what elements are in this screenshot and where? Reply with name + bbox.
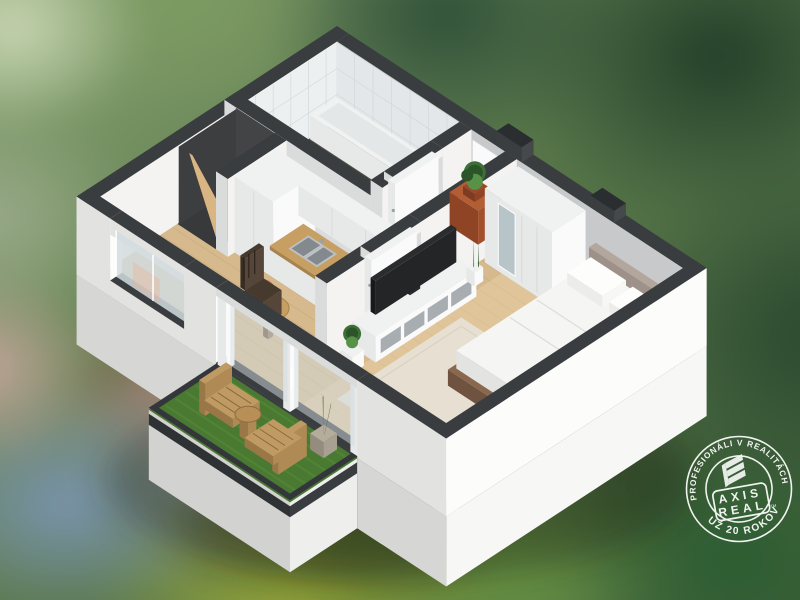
screenshot-stage: PROFESIONÁLI V REALITÁCH UŽ 20 ROKOV AXI… — [0, 0, 800, 600]
floorplan-render: PROFESIONÁLI V REALITÁCH UŽ 20 ROKOV AXI… — [0, 0, 800, 600]
badge-trademark: TM — [770, 503, 777, 509]
axisreal-watermark-badge: PROFESIONÁLI V REALITÁCH UŽ 20 ROKOV AXI… — [678, 428, 800, 550]
apartment-3d-model — [77, 26, 707, 587]
